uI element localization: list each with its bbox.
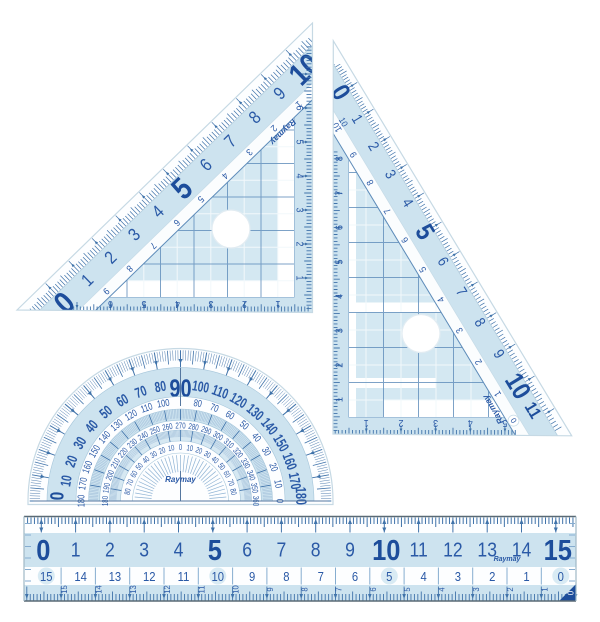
svg-text:5: 5 [141, 298, 146, 310]
svg-text:0: 0 [558, 569, 565, 584]
svg-text:10: 10 [372, 533, 400, 566]
svg-text:6: 6 [293, 105, 305, 110]
svg-text:8: 8 [300, 587, 309, 592]
svg-text:350: 350 [249, 482, 261, 494]
svg-text:190: 190 [100, 482, 112, 494]
svg-text:3: 3 [455, 569, 462, 584]
svg-text:5: 5 [293, 139, 305, 144]
svg-text:3: 3 [471, 587, 480, 592]
svg-text:4: 4 [174, 538, 184, 560]
svg-text:12: 12 [143, 569, 156, 584]
svg-text:1: 1 [275, 298, 280, 310]
svg-text:6: 6 [369, 587, 378, 592]
svg-text:5: 5 [334, 259, 346, 264]
svg-text:7: 7 [334, 587, 343, 592]
svg-text:4: 4 [420, 569, 427, 584]
svg-text:10: 10 [212, 569, 225, 584]
svg-text:12: 12 [163, 585, 172, 594]
svg-text:7: 7 [318, 569, 324, 584]
svg-text:6: 6 [242, 538, 252, 560]
svg-text:8: 8 [283, 569, 290, 584]
svg-text:2: 2 [105, 538, 115, 560]
svg-text:14: 14 [74, 569, 87, 584]
svg-text:1: 1 [71, 538, 81, 560]
svg-text:1: 1 [334, 397, 346, 402]
svg-text:6: 6 [352, 569, 359, 584]
svg-text:1: 1 [293, 275, 305, 280]
svg-text:100: 100 [191, 377, 211, 396]
svg-text:3: 3 [293, 207, 305, 212]
svg-text:11: 11 [409, 538, 427, 560]
svg-text:Raymay: Raymay [494, 556, 522, 563]
svg-text:12: 12 [443, 538, 463, 560]
svg-text:5: 5 [403, 587, 412, 592]
svg-text:6: 6 [108, 298, 113, 310]
svg-text:3: 3 [433, 417, 438, 429]
svg-text:3: 3 [334, 328, 346, 333]
svg-text:2: 2 [398, 417, 403, 429]
svg-text:13: 13 [128, 585, 137, 594]
svg-text:14: 14 [94, 585, 103, 594]
svg-text:9: 9 [345, 538, 355, 560]
svg-text:13: 13 [109, 569, 122, 584]
svg-text:2: 2 [489, 569, 495, 584]
svg-text:7: 7 [334, 191, 346, 196]
svg-text:4: 4 [175, 298, 180, 310]
svg-text:260: 260 [162, 421, 174, 433]
svg-text:270: 270 [175, 421, 185, 431]
svg-text:5: 5 [386, 569, 393, 584]
svg-text:10: 10 [231, 585, 240, 594]
svg-text:280: 280 [188, 421, 200, 433]
svg-text:4: 4 [437, 587, 446, 592]
svg-text:4: 4 [468, 417, 473, 429]
svg-text:1: 1 [364, 417, 369, 429]
svg-text:2: 2 [506, 587, 515, 592]
svg-text:11: 11 [178, 569, 190, 584]
svg-text:3: 3 [139, 538, 149, 560]
svg-text:1: 1 [540, 587, 549, 592]
svg-text:3: 3 [208, 298, 213, 310]
svg-text:170: 170 [76, 477, 89, 491]
svg-text:7: 7 [277, 538, 287, 560]
svg-text:2: 2 [242, 298, 247, 310]
svg-text:100: 100 [156, 397, 170, 410]
svg-text:15: 15 [544, 533, 572, 566]
svg-text:9: 9 [266, 587, 275, 592]
svg-text:0: 0 [179, 444, 182, 452]
svg-text:Raymay: Raymay [165, 475, 196, 484]
svg-text:8: 8 [334, 156, 346, 161]
svg-text:5: 5 [208, 533, 222, 566]
svg-text:15: 15 [60, 585, 69, 594]
svg-text:0: 0 [36, 533, 50, 566]
svg-text:5: 5 [502, 417, 507, 429]
svg-text:8: 8 [311, 538, 321, 560]
svg-text:4: 4 [293, 173, 305, 178]
svg-text:0: 0 [567, 590, 576, 595]
svg-text:15: 15 [40, 569, 53, 584]
svg-text:0: 0 [46, 491, 68, 500]
svg-text:6: 6 [334, 225, 346, 230]
svg-text:4: 4 [334, 294, 346, 299]
svg-text:1: 1 [523, 569, 530, 584]
svg-text:180: 180 [292, 487, 310, 506]
svg-text:9: 9 [249, 569, 256, 584]
svg-text:2: 2 [334, 363, 346, 368]
svg-text:2: 2 [293, 241, 305, 246]
svg-text:11: 11 [197, 585, 206, 593]
